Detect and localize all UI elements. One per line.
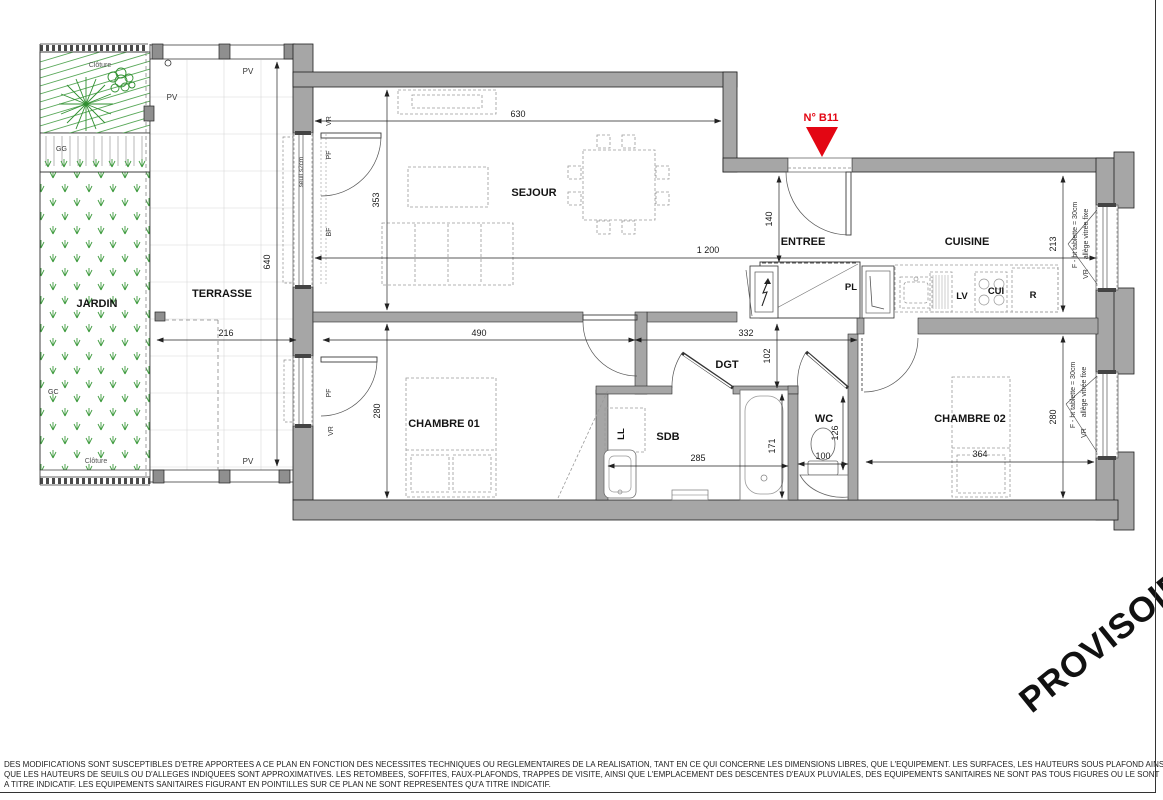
disclaimer-line-3: A TITRE INDICATIF. LES EQUIPEMENTS SANIT…	[4, 780, 1154, 790]
furniture	[382, 90, 1010, 498]
label-vr-cuisine: VR	[1083, 269, 1090, 279]
room-label-entree: ENTREE	[781, 236, 826, 248]
terrasse-area	[144, 44, 295, 484]
dim-102: 102	[762, 348, 772, 363]
bathroom-fixtures	[604, 390, 788, 500]
dim-213: 213	[1048, 236, 1058, 251]
label-seuil: seuil s2cm	[298, 157, 305, 188]
room-label-cuisine: CUISINE	[945, 236, 990, 248]
label-allege-cuisine: allège vitrée fixe	[1083, 209, 1090, 260]
cuisine-window	[1096, 203, 1118, 292]
label-vr-chambre2: VR	[1081, 428, 1088, 438]
sheet-frame-bottom	[0, 792, 1156, 793]
jardin-area	[40, 29, 150, 485]
kitchen-counter	[895, 265, 1058, 312]
room-label-chambre1: CHAMBRE 01	[408, 418, 480, 430]
entrance-arrow-icon	[806, 127, 838, 157]
dim-140: 140	[764, 211, 774, 226]
room-label-wc: WC	[815, 413, 833, 425]
floor-plan-drawing: 630 353 1 200 216 640 490 332 102 140 21…	[0, 0, 1163, 800]
palm-plant	[59, 77, 113, 131]
sheet-frame-right	[1155, 0, 1156, 793]
label-pv-2: PV	[167, 93, 178, 102]
dim-280-ch2: 280	[1048, 409, 1058, 424]
label-ll: LL	[616, 428, 627, 440]
label-pf-chambre1: PF	[326, 389, 333, 398]
label-f-tablette-cuisine: F - ht tablette = 30cm	[1072, 202, 1079, 269]
utility-cabinet	[862, 266, 894, 318]
label-r: R	[1030, 290, 1037, 301]
dim-630: 630	[510, 109, 525, 119]
floor-plan-sheet: 630 353 1 200 216 640 490 332 102 140 21…	[0, 0, 1163, 800]
entrance-opening	[788, 158, 852, 172]
disclaimer-line-2: QUE LES HAUTEURS DE SEUILS OU D'ALLEGES …	[4, 770, 1154, 780]
dim-364: 364	[972, 449, 987, 459]
dim-280-ch1: 280	[372, 403, 382, 418]
unit-number: N° B11	[804, 112, 839, 124]
room-label-jardin: JARDIN	[77, 298, 118, 310]
label-cloture-bottom: Clôture	[85, 458, 108, 465]
label-lv: LV	[956, 291, 968, 302]
label-bf-sejour: BF	[326, 228, 333, 237]
room-label-chambre2: CHAMBRE 02	[934, 413, 1006, 425]
label-vr-sejour: VR	[326, 116, 333, 126]
dim-353: 353	[371, 192, 381, 207]
dim-126: 126	[830, 425, 840, 440]
label-pf-sejour: PF	[326, 151, 333, 160]
room-label-terrasse: TERRASSE	[192, 288, 252, 300]
fence-top	[40, 44, 148, 52]
label-cui: CUI	[988, 286, 1004, 297]
wc-fixtures	[800, 428, 848, 497]
dim-100: 100	[815, 451, 830, 461]
chambre2-window	[1096, 370, 1118, 460]
dim-490: 490	[471, 328, 486, 338]
entrance-marker: N° B11	[804, 112, 839, 157]
room-label-sdb: SDB	[656, 431, 679, 443]
label-allege-chambre2: allège vitrée fixe	[1081, 367, 1088, 418]
label-gg: GG	[56, 146, 67, 153]
post-symbol	[165, 60, 171, 66]
label-cloture-top: Clôture	[89, 62, 112, 69]
label-f-tablette-chambre2: F - ht tablette = 30cm	[1070, 362, 1077, 429]
label-pv-1: PV	[243, 67, 254, 76]
disclaimer-line-1: DES MODIFICATIONS SONT SUSCEPTIBLES D'ET…	[4, 760, 1154, 770]
dim-332: 332	[738, 328, 753, 338]
exterior-walls	[293, 44, 1134, 530]
room-label-sejour: SEJOUR	[511, 187, 556, 199]
fence-bottom	[40, 477, 150, 485]
label-pl: PL	[845, 282, 857, 293]
dim-285: 285	[690, 453, 705, 463]
label-gc: GC	[48, 389, 59, 396]
electrical-panel	[746, 266, 778, 318]
dim-216: 216	[218, 328, 233, 338]
label-vr-chambre1: VR	[328, 426, 335, 436]
dim-640: 640	[262, 254, 272, 269]
label-pv-3: PV	[243, 457, 254, 466]
room-label-dgt: DGT	[715, 359, 739, 371]
dim-171: 171	[767, 438, 777, 453]
dim-1200: 1 200	[697, 245, 720, 255]
